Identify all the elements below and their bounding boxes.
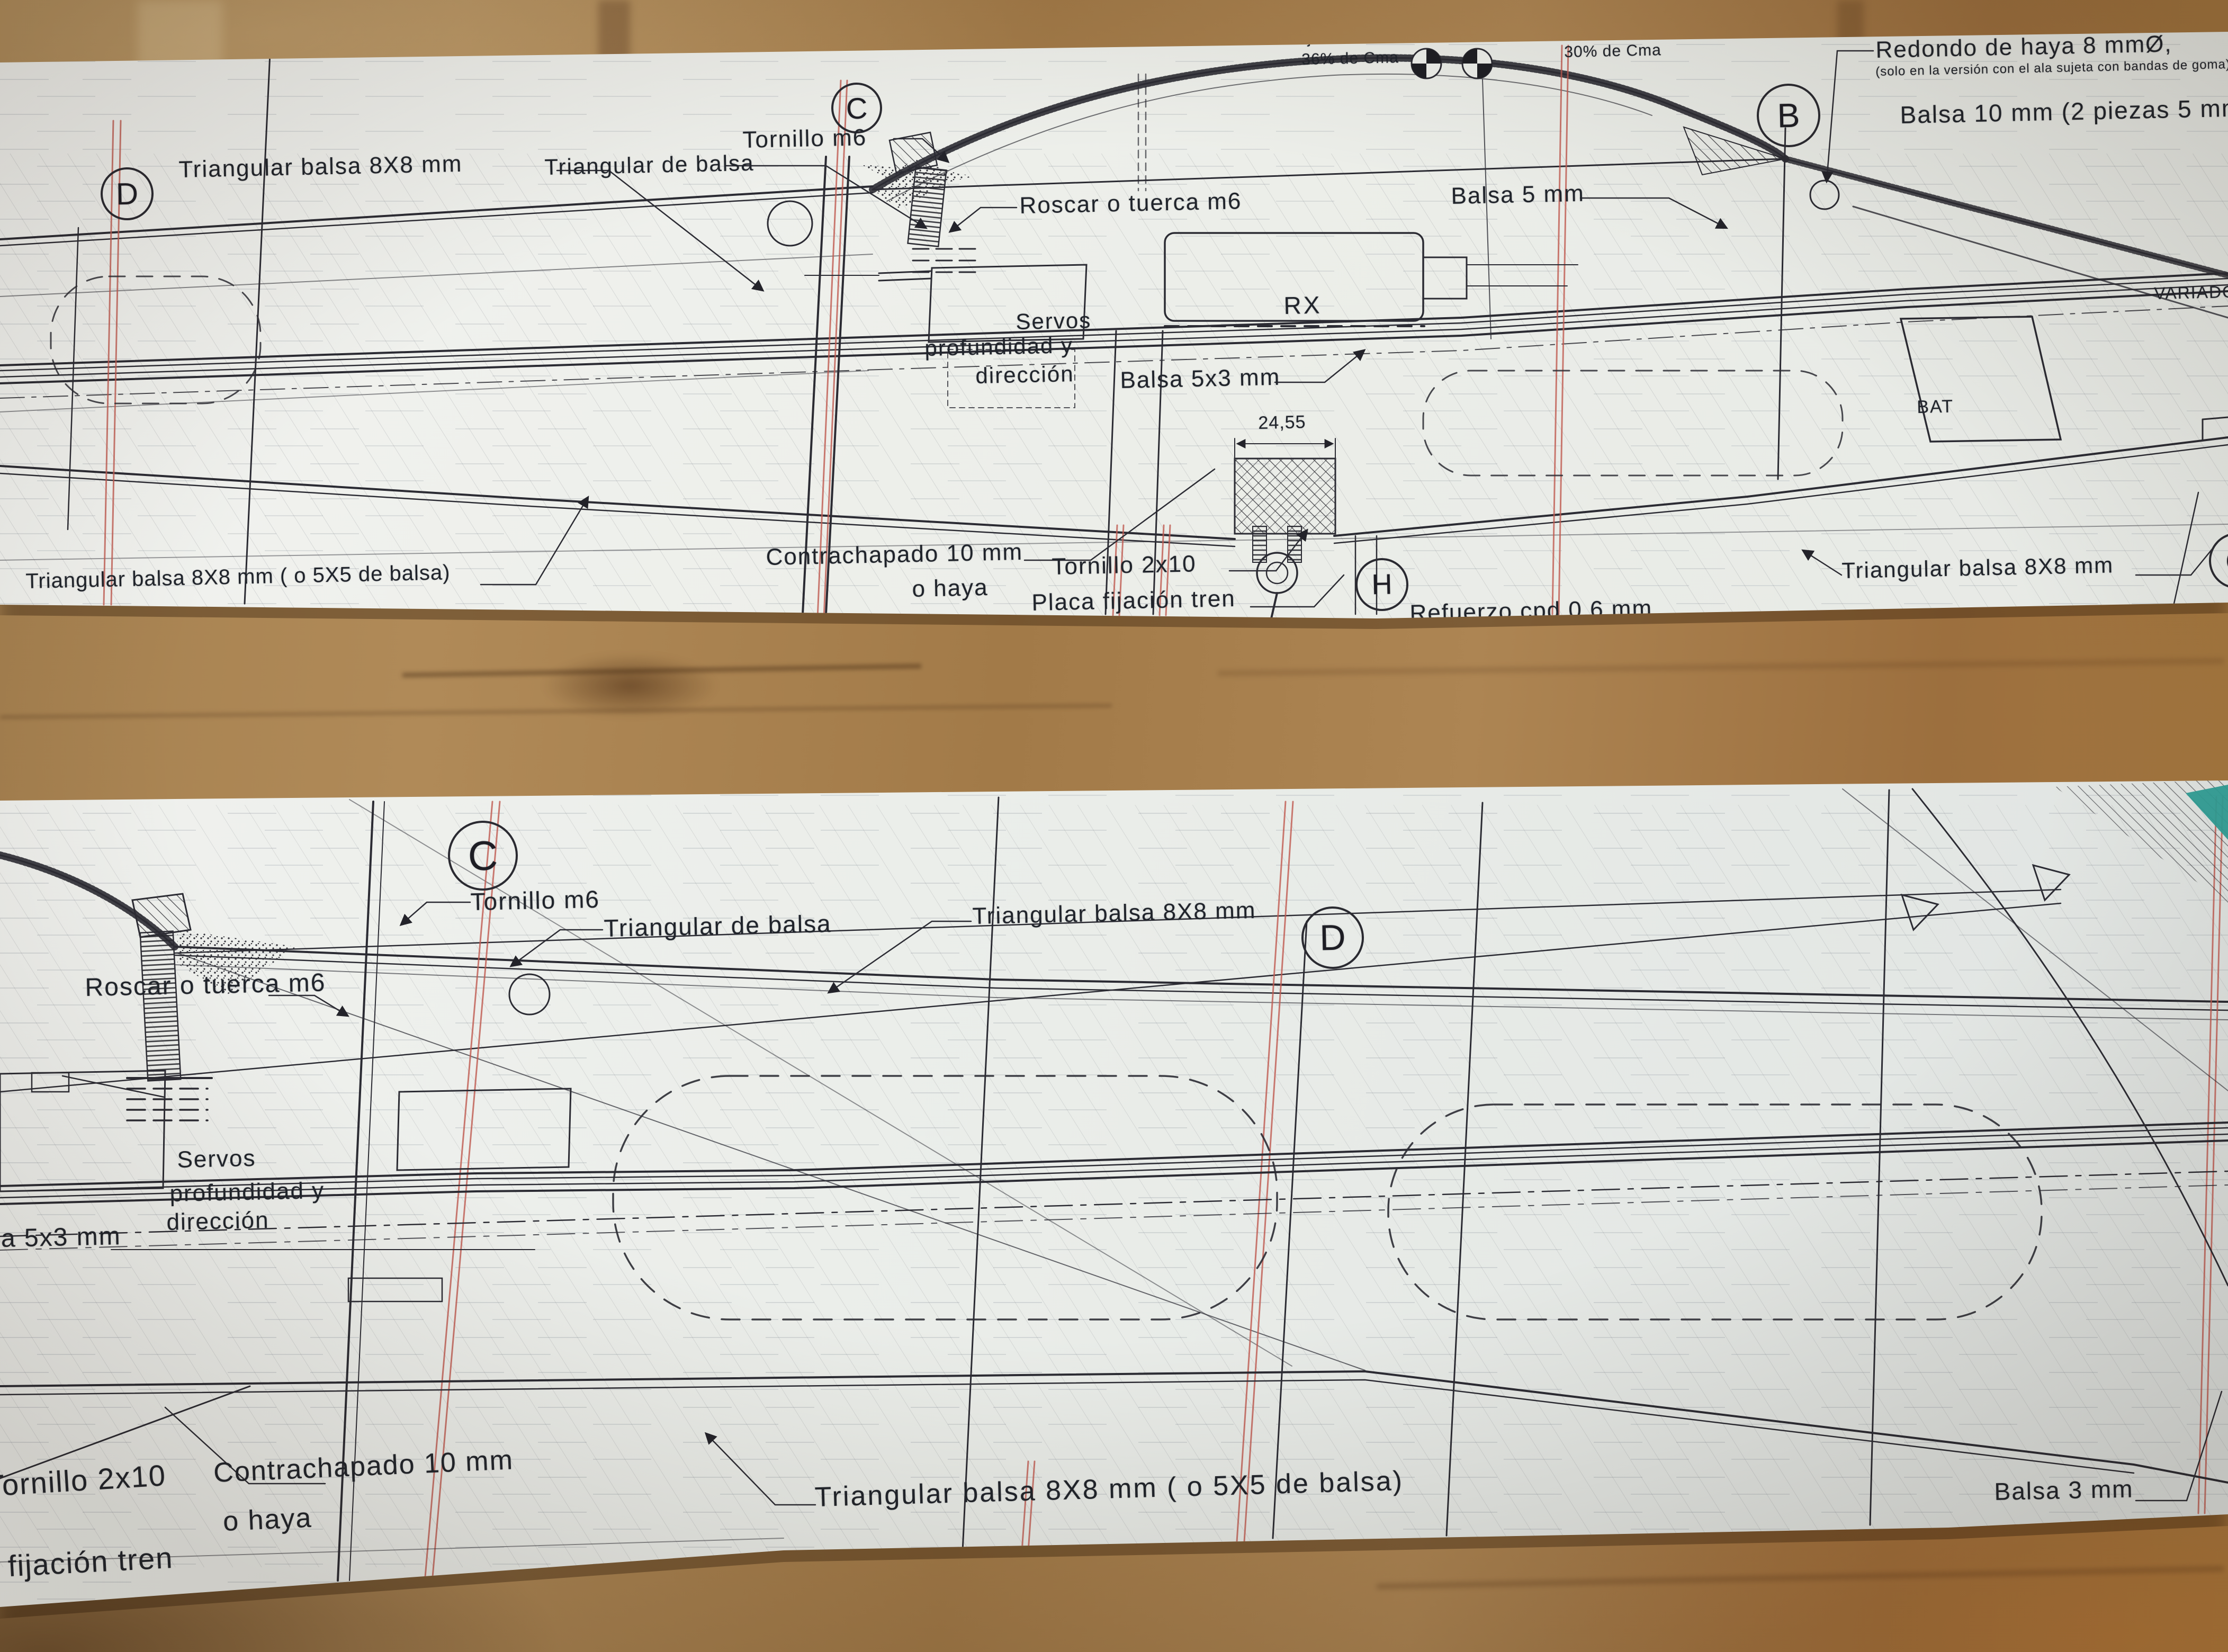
- top-sheet-drawing: [0, 32, 2228, 630]
- bottom-sheet-drawing: [0, 779, 2228, 1606]
- plan-linework: [0, 0, 2228, 1652]
- cg-symbol: [1462, 49, 1492, 78]
- cg-symbol: [1412, 49, 1441, 78]
- photo-of-plan-sheets: D C B H G Triangular balsa 8X8 mm Triang…: [0, 0, 2228, 1652]
